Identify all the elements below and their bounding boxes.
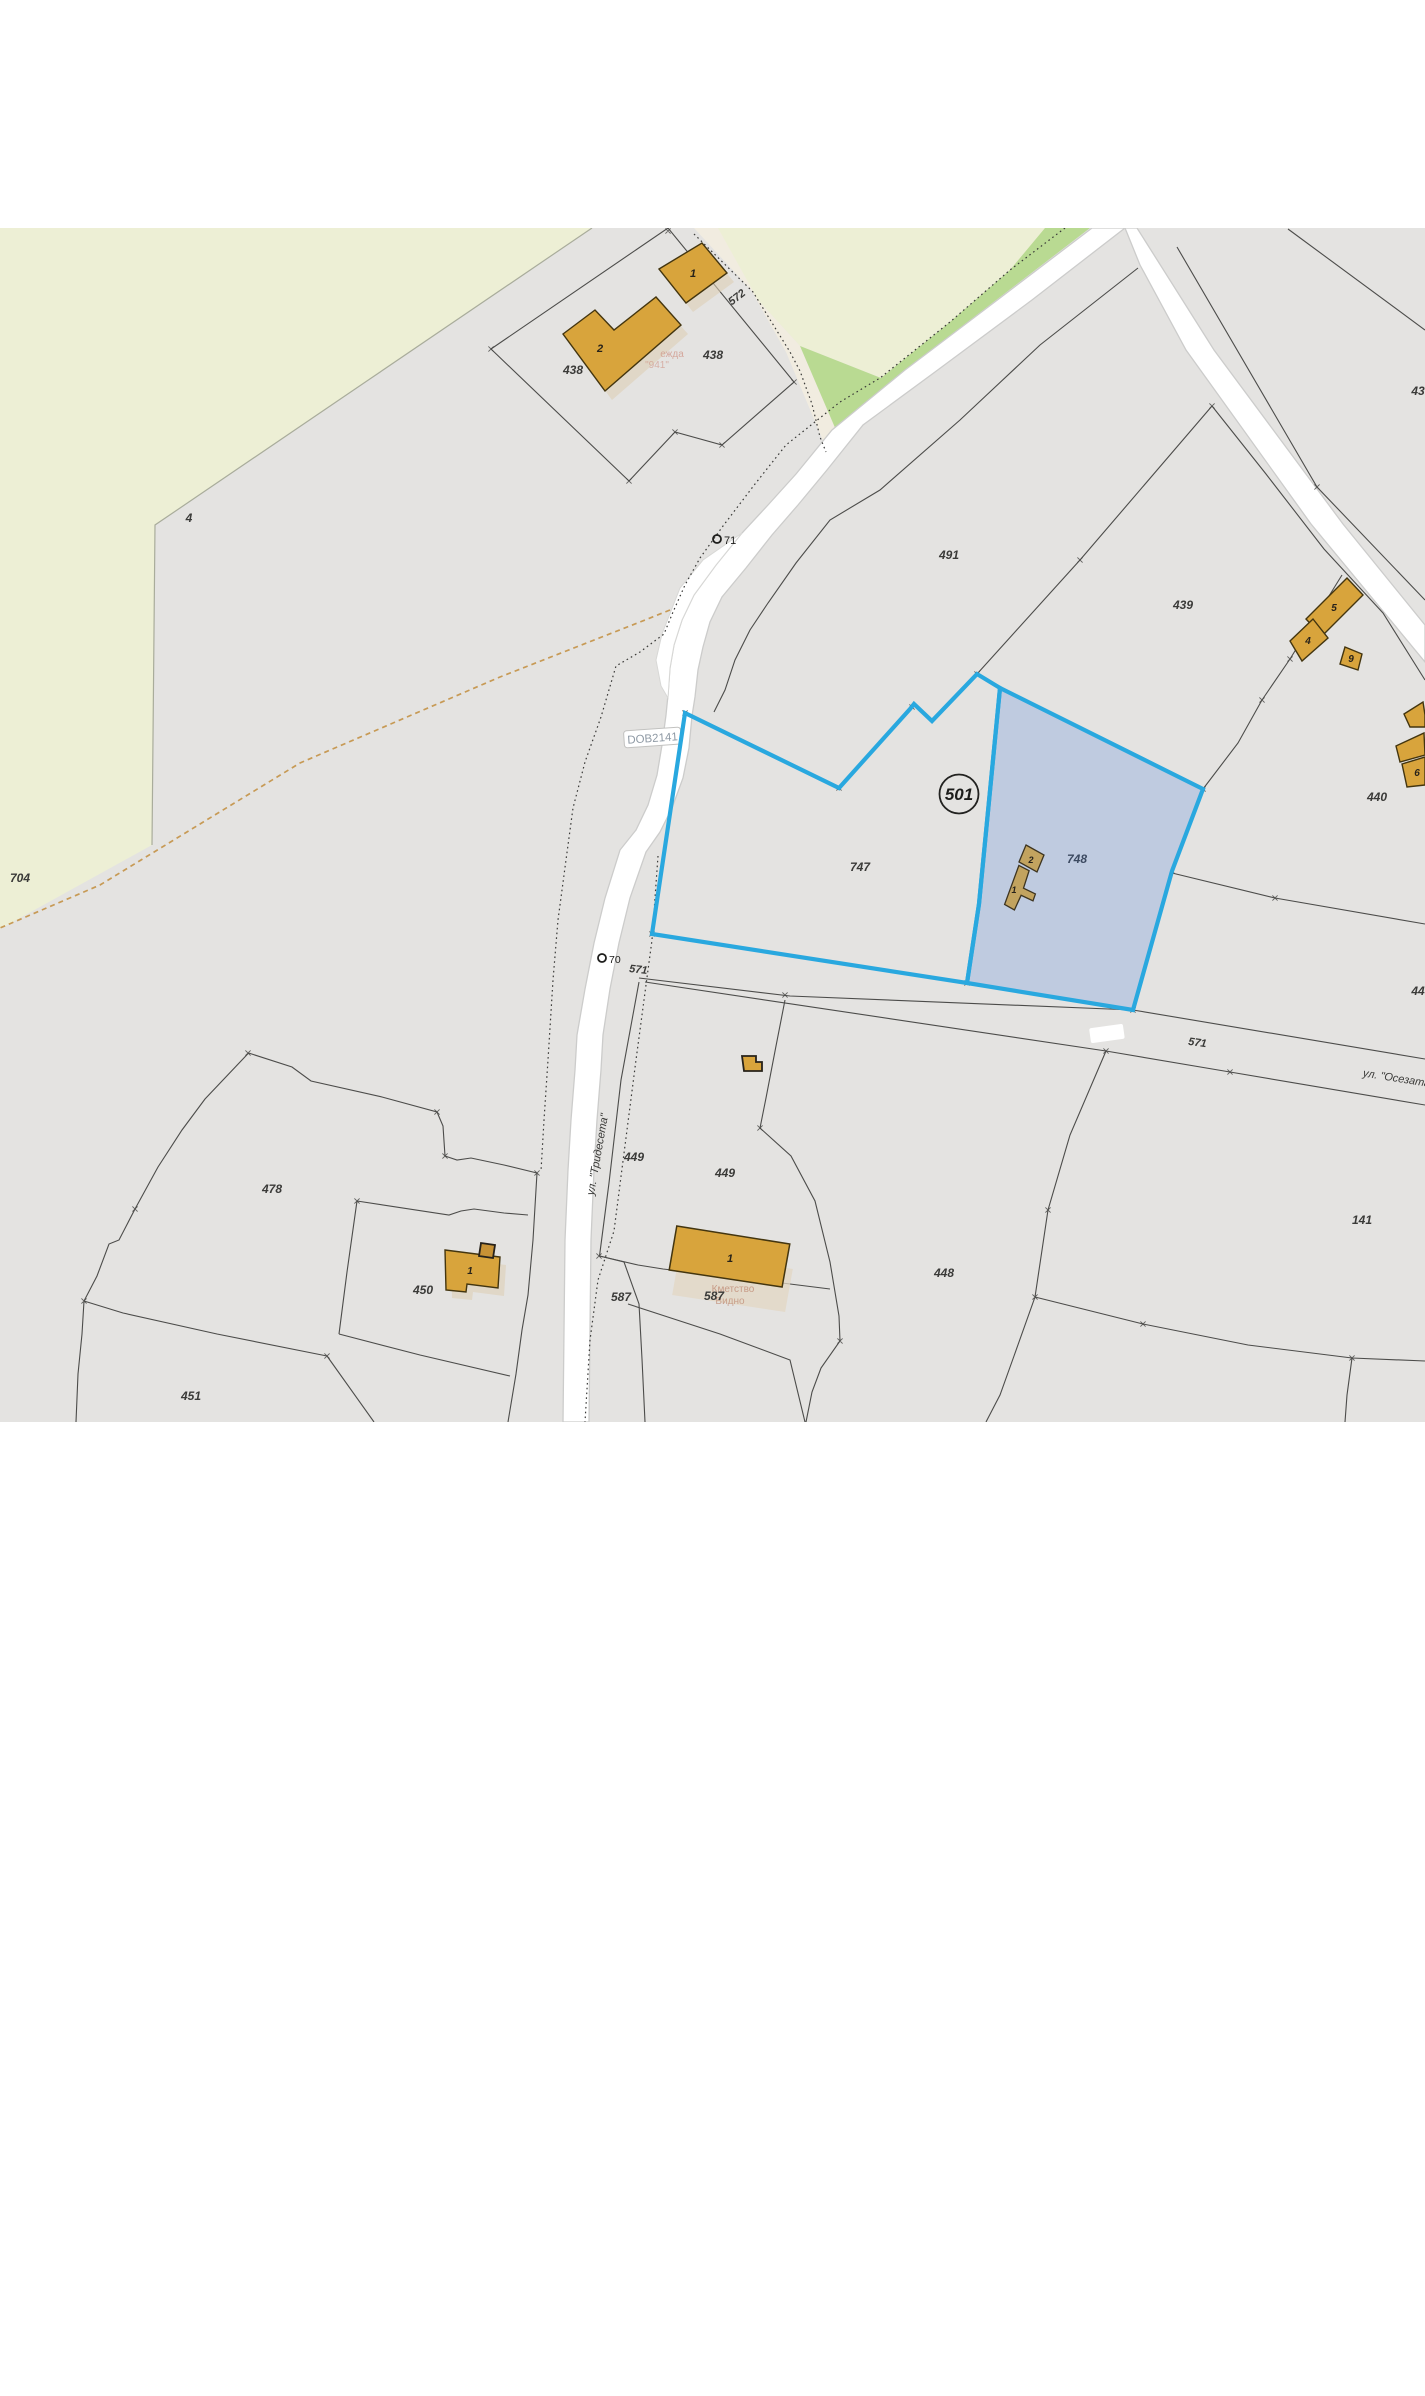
- svg-text:747: 747: [850, 860, 871, 874]
- svg-text:449: 449: [623, 1150, 644, 1164]
- svg-text:587: 587: [704, 1289, 725, 1303]
- svg-text:450: 450: [412, 1283, 433, 1297]
- svg-text:438: 438: [702, 348, 723, 362]
- svg-text:"941": "941": [645, 360, 669, 371]
- svg-text:6: 6: [1414, 768, 1420, 779]
- svg-text:440: 440: [1366, 790, 1387, 804]
- svg-text:439: 439: [1172, 598, 1193, 612]
- svg-text:451: 451: [180, 1389, 201, 1403]
- svg-text:5: 5: [1331, 603, 1337, 614]
- svg-text:70: 70: [609, 954, 621, 966]
- svg-text:571: 571: [1187, 1036, 1207, 1050]
- svg-text:478: 478: [261, 1182, 282, 1196]
- svg-text:501: 501: [945, 785, 973, 804]
- svg-text:1: 1: [727, 1253, 733, 1265]
- svg-text:2: 2: [596, 343, 603, 355]
- svg-text:438: 438: [562, 363, 583, 377]
- svg-text:43: 43: [1410, 384, 1425, 398]
- svg-text:449: 449: [714, 1166, 735, 1180]
- svg-text:587: 587: [611, 1290, 632, 1304]
- svg-text:4: 4: [185, 511, 193, 525]
- svg-text:748: 748: [1067, 852, 1087, 866]
- svg-text:2: 2: [1027, 855, 1033, 865]
- svg-text:1: 1: [467, 1266, 473, 1277]
- svg-text:71: 71: [724, 535, 736, 547]
- svg-text:44: 44: [1410, 984, 1425, 998]
- svg-text:4: 4: [1304, 636, 1311, 647]
- svg-text:ежда: ежда: [660, 349, 684, 360]
- svg-text:9: 9: [1348, 654, 1354, 665]
- svg-text:1: 1: [690, 268, 696, 280]
- svg-text:141: 141: [1352, 1213, 1372, 1227]
- svg-text:571: 571: [629, 963, 649, 977]
- svg-text:491: 491: [938, 548, 959, 562]
- svg-text:448: 448: [933, 1266, 954, 1280]
- svg-text:1: 1: [1011, 885, 1016, 895]
- svg-text:704: 704: [10, 871, 30, 885]
